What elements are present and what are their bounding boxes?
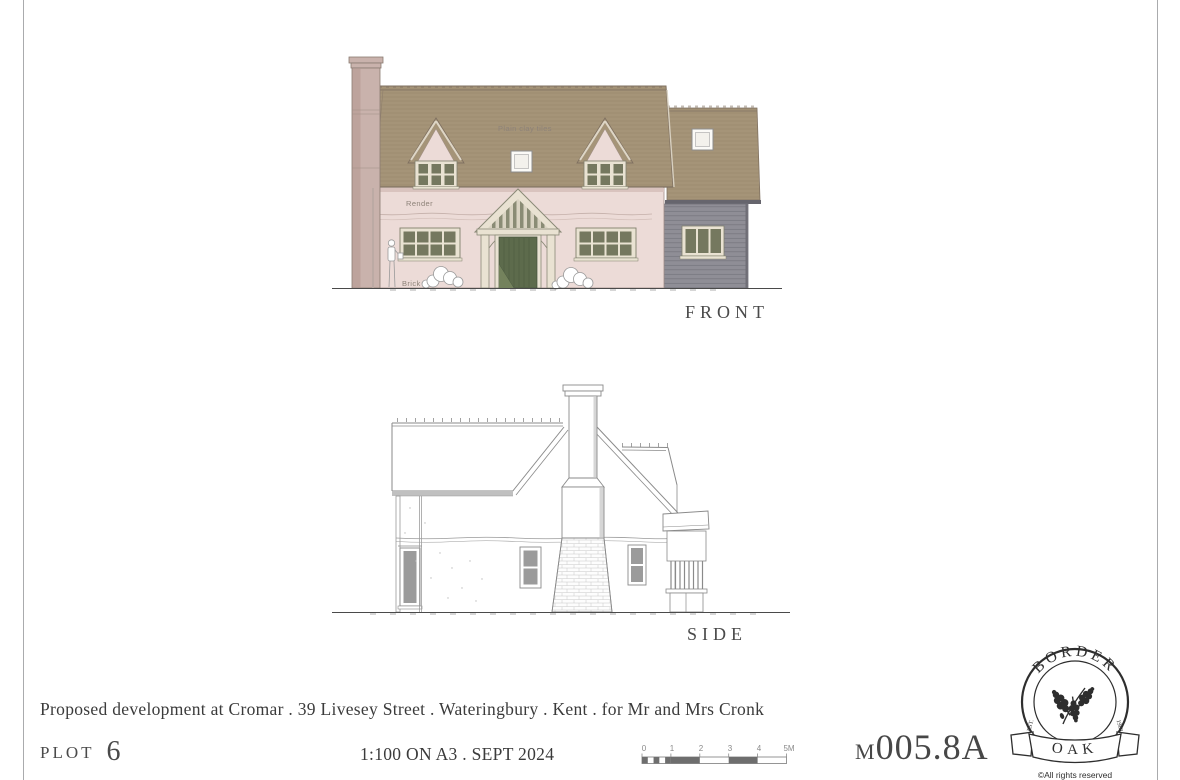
front-annex-roof xyxy=(667,107,760,201)
label-plinth-material: Brick xyxy=(402,279,421,288)
drawing-number-prefix: M xyxy=(855,739,876,764)
side-window-right xyxy=(628,545,646,585)
side-downpipe xyxy=(420,496,422,612)
side-porch xyxy=(663,511,709,612)
annex-window xyxy=(680,226,726,259)
plot-label: PLOT xyxy=(40,743,95,762)
scale-bar: 0 1 2 3 4 5M xyxy=(636,740,801,768)
drawing-sheet: Plain clay tiles Render Brick FRONT xyxy=(0,0,1180,780)
scale-tick-4: 4 xyxy=(757,744,762,753)
plot-reference: PLOT6 xyxy=(40,736,121,768)
side-elevation-drawing xyxy=(330,383,795,618)
project-title: Proposed development at Cromar . 39 Live… xyxy=(40,699,764,720)
annex-rooflight xyxy=(692,129,713,150)
side-front-slope xyxy=(593,427,682,518)
front-elevation-label: FRONT xyxy=(632,302,822,323)
drawing-number: M005.8A xyxy=(855,726,989,768)
front-annex-wall xyxy=(664,200,761,288)
border-oak-logo: BORDER EST. 1980 OAK ©All rights reserve… xyxy=(1005,642,1145,780)
sheet-border-left xyxy=(23,0,24,780)
scale-tick-5: 5M xyxy=(783,744,794,753)
side-window-mid xyxy=(520,547,541,588)
front-door xyxy=(499,237,537,288)
side-ground-line xyxy=(332,613,790,615)
logo-rights-text: ©All rights reserved xyxy=(1038,770,1113,780)
side-main-roof xyxy=(392,418,568,496)
side-brick-plinth xyxy=(552,538,612,612)
front-elevation-drawing: Plain clay tiles Render Brick xyxy=(330,50,785,295)
drawing-number-value: 005.8A xyxy=(876,727,989,767)
scale-tick-2: 2 xyxy=(699,744,704,753)
plot-number: 6 xyxy=(107,736,121,767)
label-wall-material: Render xyxy=(406,199,433,208)
main-rooflight xyxy=(511,151,532,172)
sheet-border-right xyxy=(1157,0,1158,780)
side-annex-roof xyxy=(622,442,677,515)
side-elevation-label: SIDE xyxy=(622,624,812,645)
scale-and-date: 1:100 ON A3 . SEPT 2024 xyxy=(360,744,554,765)
side-door xyxy=(398,546,422,609)
front-chimney xyxy=(349,57,383,288)
front-window-right xyxy=(574,228,638,261)
front-window-left xyxy=(398,228,462,261)
scale-tick-3: 3 xyxy=(728,744,733,753)
label-roof-material: Plain clay tiles xyxy=(498,124,552,133)
logo-banner-text: OAK xyxy=(1051,740,1099,758)
scale-tick-0: 0 xyxy=(642,744,647,753)
scale-tick-1: 1 xyxy=(670,744,675,753)
